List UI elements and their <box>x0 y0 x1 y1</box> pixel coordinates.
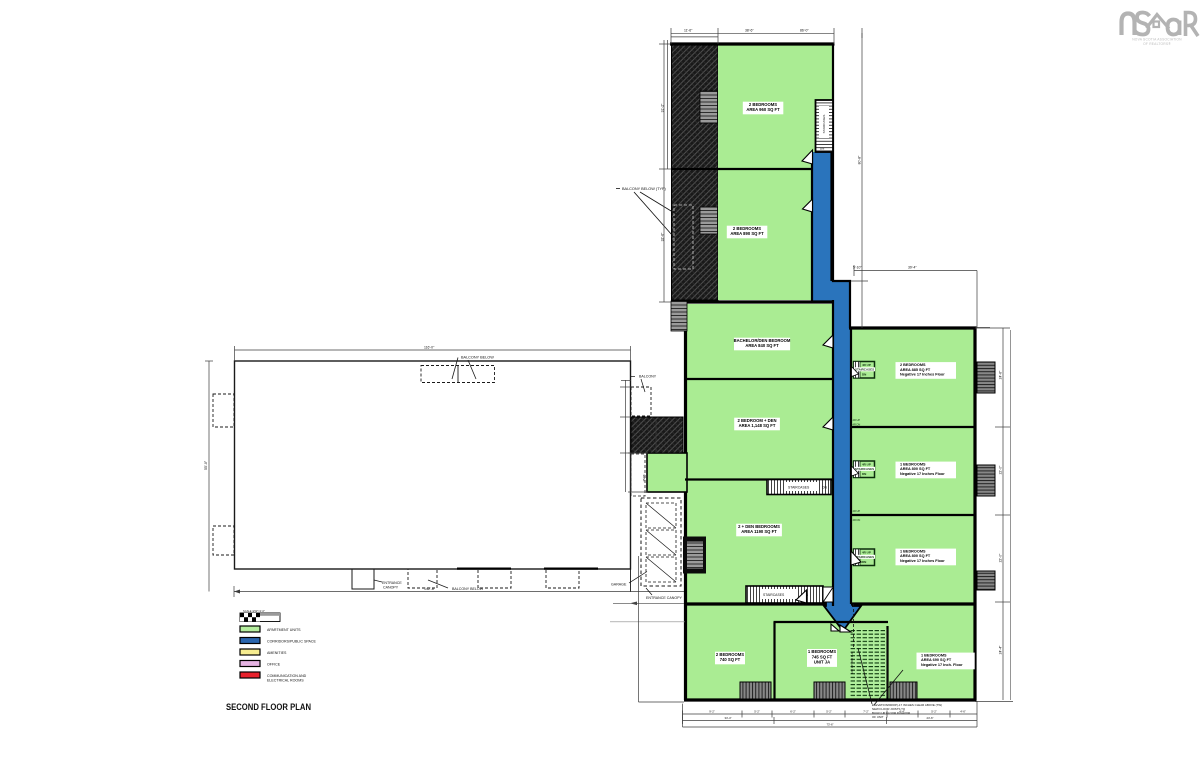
svg-text:11'-6": 11'-6" <box>684 29 693 33</box>
svg-text:39'-4": 39'-4" <box>908 266 917 270</box>
svg-text:25/25: 25/25 <box>642 474 646 481</box>
svg-text:4R UP: 4R UP <box>862 463 871 467</box>
svg-text:AREA 960 SQ FT: AREA 960 SQ FT <box>746 107 780 112</box>
svg-text:2 BEDROOM + DEN: 2 BEDROOM + DEN <box>738 418 777 423</box>
svg-text:SCALE 3/32"=1'-0": SCALE 3/32"=1'-0" <box>243 609 265 613</box>
svg-text:16R UP 3RD FLR: 16R UP 3RD FLR <box>850 652 854 674</box>
svg-text:COMMUNICATION AND: COMMUNICATION AND <box>267 674 307 678</box>
svg-text:4R DN: 4R DN <box>853 518 861 522</box>
svg-text:1 BEDROOMS: 1 BEDROOMS <box>808 649 836 654</box>
svg-text:Negative 17 Inches Floor: Negative 17 Inches Floor <box>900 373 945 377</box>
svg-text:DN: DN <box>822 486 827 490</box>
svg-text:AREA 890 SQ FT: AREA 890 SQ FT <box>730 231 764 236</box>
svg-text:22'-0": 22'-0" <box>999 465 1003 474</box>
svg-text:22'-0": 22'-0" <box>999 553 1003 562</box>
svg-text:740 SQ FT: 740 SQ FT <box>720 657 741 662</box>
svg-text:OFFICE: OFFICE <box>267 662 281 666</box>
svg-text:5'-2": 5'-2" <box>931 710 937 714</box>
svg-text:AREA 1190 SQ FT: AREA 1190 SQ FT <box>741 529 777 534</box>
svg-text:34'-4": 34'-4" <box>724 716 731 720</box>
svg-text:Negative 17 Inches Floor: Negative 17 Inches Floor <box>900 559 945 563</box>
svg-text:UNIT JA: UNIT JA <box>814 660 830 665</box>
svg-text:BALCONY: BALCONY <box>639 375 657 379</box>
svg-text:APARTMENT UNITS: APARTMENT UNITS <box>267 628 301 632</box>
svg-text:73'-6": 73'-6" <box>826 723 833 727</box>
svg-text:AREA 690 SQ FT: AREA 690 SQ FT <box>921 658 952 662</box>
svg-text:SECOND FLOOR PLAN: SECOND FLOOR PLAN <box>226 702 311 713</box>
svg-text:116'-0": 116'-0" <box>424 346 435 350</box>
svg-text:745 SQ FT: 745 SQ FT <box>812 654 833 659</box>
svg-text:4R UP: 4R UP <box>853 418 861 422</box>
svg-text:4R UP: 4R UP <box>853 509 861 513</box>
svg-text:5'-2": 5'-2" <box>826 710 832 714</box>
svg-text:4R DN: 4R DN <box>853 423 861 427</box>
svg-text:DN: DN <box>862 560 866 564</box>
svg-text:9'-2": 9'-2" <box>709 710 715 714</box>
svg-text:BALCONY BELOW (TYP): BALCONY BELOW (TYP) <box>622 187 667 191</box>
svg-text:6'-2": 6'-2" <box>790 710 796 714</box>
svg-text:7'-2": 7'-2" <box>863 710 869 714</box>
svg-text:24'-6": 24'-6" <box>999 370 1003 379</box>
svg-text:BALCONY BELOW: BALCONY BELOW <box>461 356 494 360</box>
svg-text:Negative 17 Inches Floor: Negative 17 Inches Floor <box>900 472 945 476</box>
svg-text:ELECTRICAL ROOMS: ELECTRICAL ROOMS <box>267 678 304 682</box>
svg-text:80'-8": 80'-8" <box>858 155 862 164</box>
svg-text:STAIRCASES: STAIRCASES <box>788 486 810 490</box>
svg-text:4R UP: 4R UP <box>862 551 871 555</box>
svg-text:Negative 17 Inch. Floor: Negative 17 Inch. Floor <box>921 663 963 667</box>
svg-text:DN: DN <box>862 373 866 377</box>
svg-text:DN: DN <box>862 472 866 476</box>
svg-text:31'-2": 31'-2" <box>661 103 665 112</box>
svg-text:24'-6": 24'-6" <box>926 716 933 720</box>
svg-text:AMENITIES: AMENITIES <box>267 651 287 655</box>
svg-text:AREA 1,148 SQ FT: AREA 1,148 SQ FT <box>739 423 776 428</box>
svg-text:AREA 840 SQ FT: AREA 840 SQ FT <box>745 343 779 348</box>
svg-text:5'-2": 5'-2" <box>754 710 760 714</box>
svg-text:4R UP: 4R UP <box>862 363 871 367</box>
svg-text:38'-6": 38'-6" <box>745 29 754 33</box>
svg-text:1 BEDROOMS: 1 BEDROOMS <box>921 653 947 657</box>
svg-text:4'-6": 4'-6" <box>960 710 966 714</box>
svg-text:DN: DN <box>820 147 824 151</box>
svg-text:AREA 800 SQ FT: AREA 800 SQ FT <box>900 554 931 558</box>
svg-text:2 BEDROOMS: 2 BEDROOMS <box>749 102 777 107</box>
svg-text:2 BEDROOMS: 2 BEDROOMS <box>733 226 761 231</box>
svg-text:5'-10": 5'-10" <box>853 266 862 270</box>
svg-text:GARAGE: GARAGE <box>611 583 627 587</box>
svg-text:CORRIDORS/PUBLIC SPACE: CORRIDORS/PUBLIC SPACE <box>267 639 316 643</box>
svg-text:STAIRCASES: STAIRCASES <box>822 115 826 134</box>
svg-text:STAIRCASES: STAIRCASES <box>855 368 874 372</box>
svg-text:ENTRANCE: ENTRANCE <box>382 581 402 585</box>
svg-text:BACHELOR/DEN BEDROOM: BACHELOR/DEN BEDROOM <box>734 338 791 343</box>
svg-text:32'-6": 32'-6" <box>661 232 665 241</box>
svg-text:2 BEDROOMS: 2 BEDROOMS <box>716 652 744 657</box>
svg-text:OF REALTORS®: OF REALTORS® <box>1143 42 1171 46</box>
svg-text:OF UNIT: OF UNIT <box>872 715 884 719</box>
svg-text:1 BEDROOMS: 1 BEDROOMS <box>900 462 926 466</box>
svg-text:BALCONY BELOW: BALCONY BELOW <box>452 587 484 591</box>
svg-text:142'-8": 142'-8" <box>424 587 436 591</box>
svg-text:1 BEDROOMS: 1 BEDROOMS <box>900 549 926 553</box>
svg-text:AREA 800 SQ FT: AREA 800 SQ FT <box>900 467 931 471</box>
svg-text:ENTRANCE CANOPY: ENTRANCE CANOPY <box>646 596 683 600</box>
svg-text:55'-0": 55'-0" <box>204 460 208 470</box>
svg-text:86'-0": 86'-0" <box>800 29 809 33</box>
svg-text:AREA 885 SQ FT: AREA 885 SQ FT <box>900 368 931 372</box>
svg-text:STAIRCASES: STAIRCASES <box>763 593 785 597</box>
svg-text:STAIRCASES: STAIRCASES <box>855 467 874 471</box>
svg-text:24'-4": 24'-4" <box>999 645 1003 654</box>
svg-text:2 + DEN BEDROOMS: 2 + DEN BEDROOMS <box>738 524 780 529</box>
svg-text:2 BEDROOMS: 2 BEDROOMS <box>900 363 926 367</box>
svg-text:CANOPY: CANOPY <box>383 586 399 590</box>
